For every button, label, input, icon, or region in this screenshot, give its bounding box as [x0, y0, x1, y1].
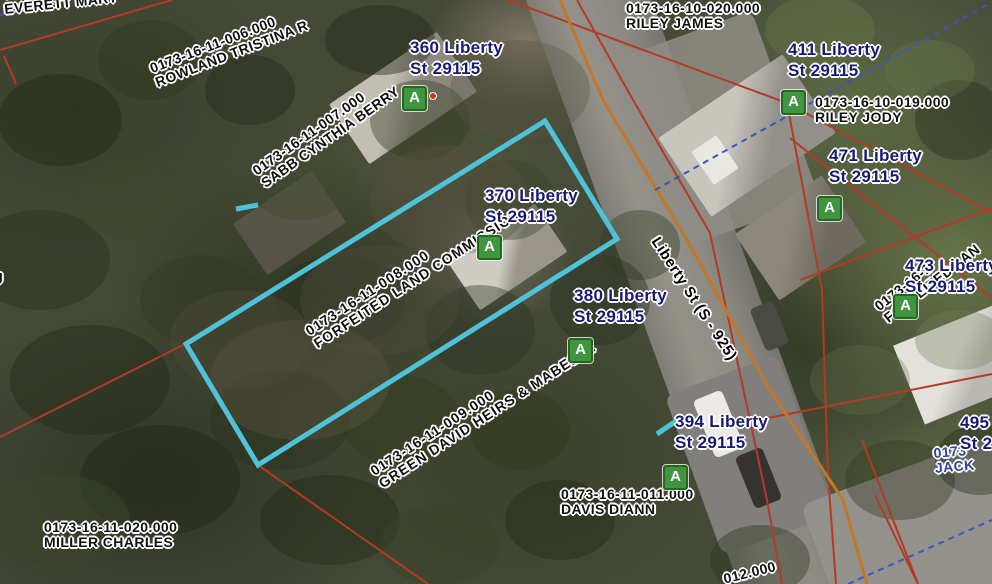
address-label-411: 411 Liberty St 29115: [788, 39, 880, 81]
address-label-495-partial: 495 Liberty St 29115: [960, 412, 992, 454]
address-label-473: 473 Liberty St 29115: [905, 255, 992, 297]
map-linework-svg: [0, 0, 992, 584]
address-line2: St 29115: [485, 206, 578, 227]
address-line1: 471 Liberty: [829, 145, 922, 166]
address-line2: St 29115: [788, 60, 880, 81]
address-line2: St 29115: [905, 276, 992, 297]
address-line2: St 29115: [675, 432, 768, 453]
address-line2: St 29115: [829, 166, 922, 187]
address-line2: St 29115: [960, 433, 992, 454]
address-marker-380[interactable]: A: [568, 338, 593, 363]
address-label-360: 360 Liberty St 29115: [410, 37, 503, 79]
tree-canopy-blobs: [0, 0, 992, 584]
address-line1: 473 Liberty: [905, 255, 992, 276]
address-marker-370[interactable]: A: [477, 235, 502, 260]
address-line1: 495 Liberty: [960, 412, 992, 433]
address-label-370: 370 Liberty St 29115: [485, 185, 578, 227]
address-marker-411[interactable]: A: [781, 90, 806, 115]
parcel-label-davis: 0173-16-11-011.000 DAVIS DIANN: [561, 487, 694, 517]
parcel-owner: RILEY JAMES: [626, 16, 760, 31]
parcel-owner: MILLER CHARLES: [44, 535, 177, 550]
address-marker-394[interactable]: A: [663, 465, 688, 490]
parcel-owner: DAVIS DIANN: [561, 502, 694, 517]
map-red-point: [430, 93, 437, 100]
parcel-label-riley-jody: 0173-16-10-019.000 RILEY JODY: [815, 95, 949, 125]
parcel-id: 0173-16-10-020.000: [626, 1, 760, 16]
address-line1: 370 Liberty: [485, 185, 578, 206]
address-line1: 411 Liberty: [788, 39, 880, 60]
parcel-label-miller: 0173-16-11-020.000 MILLER CHARLES: [44, 520, 177, 550]
address-marker-360[interactable]: A: [402, 86, 427, 111]
parcel-label-riley-james: 0173-16-10-020.000 RILEY JAMES: [626, 1, 760, 31]
parcel-owner: RILEY JODY: [815, 110, 949, 125]
address-line1: 394 Liberty: [675, 411, 768, 432]
address-line1: 360 Liberty: [410, 37, 503, 58]
address-line2: St 29115: [410, 58, 503, 79]
parcel-id: 0173-16-10-019.000: [815, 95, 949, 110]
address-line1: 380 Liberty: [574, 285, 667, 306]
address-marker-471[interactable]: A: [817, 196, 842, 221]
edge-partial-letter: J: [0, 272, 3, 287]
address-label-380: 380 Liberty St 29115: [574, 285, 667, 327]
aerial-map-canvas[interactable]: 0173-16-11-0 EVERETT MARY 0173-16-11-006…: [0, 0, 992, 584]
address-marker-473[interactable]: A: [893, 294, 918, 319]
address-label-471: 471 Liberty St 29115: [829, 145, 922, 187]
parcel-id: 0173-16-11-020.000: [44, 520, 177, 535]
address-label-394: 394 Liberty St 29115: [675, 411, 768, 453]
address-line2: St 29115: [574, 306, 667, 327]
